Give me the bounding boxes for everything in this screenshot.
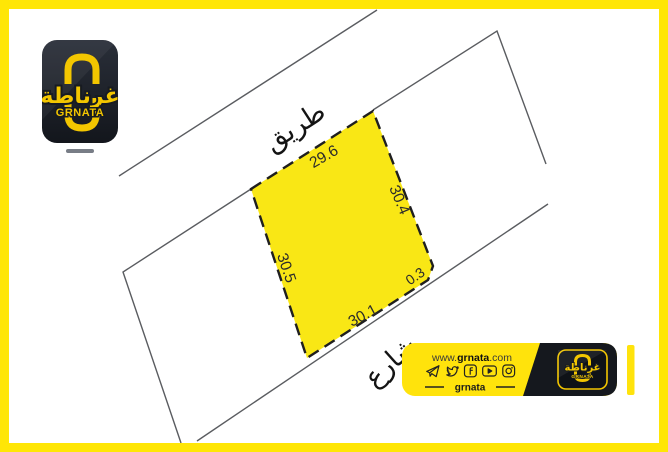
banner-logo: غرناطة GRNATA: [558, 350, 607, 389]
side-accent-bar: [627, 345, 635, 395]
logo-arabic-text: غرناطة: [42, 84, 118, 109]
banner-logo-latin: GRNATA: [571, 374, 593, 380]
handle-text: grnata: [455, 383, 486, 394]
flyer: 29.6 30.4 0.3 30.1 30.5 طريق شارع غرنا: [0, 0, 668, 452]
banner-logo-arabic: غرناطة: [564, 363, 600, 374]
grnata-logo-badge: غرناطة GRNATA: [42, 40, 118, 143]
grnata-logo-icon: غرناطة GRNATA: [42, 40, 118, 143]
logo-latin-text: GRNATA: [56, 107, 104, 119]
footer-banner-graphic: www.grnata.com: [398, 340, 640, 402]
neighbor-plot-left-outline: [123, 189, 251, 443]
neighbor-plot-right-outline: [373, 31, 546, 164]
website-url: www.grnata.com: [431, 352, 512, 364]
logo-reflection-dash: [66, 149, 94, 153]
footer-banner: www.grnata.com: [398, 340, 640, 402]
